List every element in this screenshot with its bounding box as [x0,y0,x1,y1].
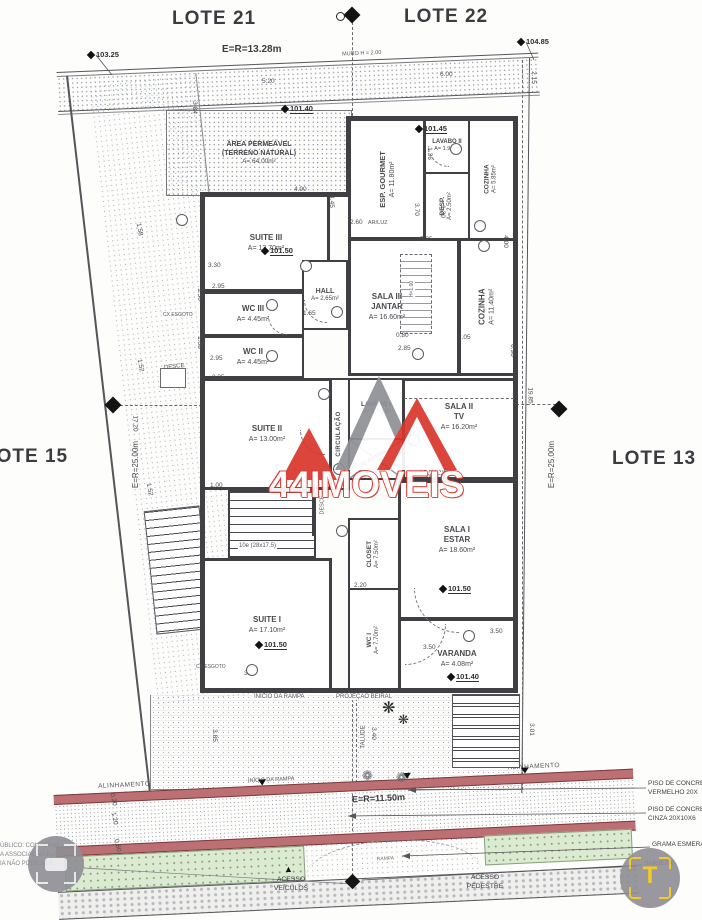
shrub-icon: ❁ [396,770,407,786]
legend-grama: GRAMA ESMERA [652,841,702,850]
room-area: A= 7.70m² [374,626,382,654]
room-area: A= 13.00m² [249,435,285,444]
room-name: CLOSET [366,541,374,567]
legend-line: GRAMA ESMERA [652,841,702,848]
left-boundary-length: E=R=25.00m [131,441,140,488]
room-jd-interno: JD INTERNO [348,438,404,480]
survey-marker-left [105,397,122,414]
legend-piso-cinza: PISO DE CONCRE CINZA 20X10X6 [648,806,702,824]
area-permeavel-line1: ÁREA PERMEÁVEL [226,140,291,149]
room-name: SUITE I [253,615,281,625]
bracket-icon [36,844,48,856]
outer-wall-bottom [200,688,518,693]
room-name: JD INTERNO [360,448,392,471]
stair-note: 10e (28x17.5) [238,543,277,549]
right-boundary-length: E=R=25.00m [547,441,556,488]
projecao-note: PROJEÇÃO BEIRAL [334,694,394,700]
stair-divider-wall [312,492,314,536]
survey-marker-top [344,7,361,24]
room-name: SALA III [372,292,402,302]
dimension-label: 19.85 [527,387,534,403]
room-area: A= 4.45m² [237,315,270,324]
legend-line: PISO DE CONCRE [648,806,702,813]
room-area: A= 11.80m² [387,161,396,197]
room-name: WC II [243,347,263,357]
tree-icon: ❋ [398,712,409,728]
outer-wall-top-left [200,192,350,197]
cp-pluvial-line1: CP PLUVIAL [420,468,450,474]
bracket-icon [36,872,48,884]
room-name: SUITE III [250,233,282,243]
rampa-note: RAMPA [377,856,395,863]
right-boundary-dashed [522,60,523,790]
cx-esgoto-note-1: CX ESGOTO [163,312,193,318]
room-wc-ii: WC IIA= 4.45m² [202,336,304,378]
cp-pluvial-note: CP PLUVIAL DESCE [420,468,450,480]
room-name: ESP. GOURMET [378,151,388,208]
room-name2: JANTAR [371,302,403,312]
room-area: A= 17.10m² [249,626,285,635]
floor-plan-page: { "lots": {"lote21":"LOTE 21","lote22":"… [0,0,702,900]
outer-wall-top-right [346,116,518,121]
area-permeavel-line3: A= 64.00m² [242,158,276,166]
room-name: SUITE II [252,424,282,434]
acesso-veiculos-line2: VEÍCULOS [274,885,308,892]
muro-note: MURO H = 2.00 [342,50,381,58]
room-name: DESP. [439,197,447,216]
area-permeavel: ÁREA PERMEÁVEL (TERRENO NATURAL) A= 64.0… [166,110,352,196]
room-area: A= 13.70m² [248,244,284,253]
talude-note: TALUDE [361,725,367,748]
room-suite-i: SUITE IA= 17.10m² [202,558,332,692]
counter-dashed-box [400,254,432,334]
lot-13-label: LOTE 13 [612,448,696,470]
cx-esgoto-note-2: CX ESGOTO [196,664,226,670]
room-circulacao: CIRCULAÇÃO [330,378,350,490]
outer-wall-right [513,116,518,692]
badge-letter: T [620,862,680,890]
lot-21-label: LOTE 21 [172,8,256,30]
room-name: CIRCULAÇÃO [336,411,344,456]
area-permeavel-line2: (TERRENO NATURAL) [222,149,296,158]
desce-mid-note: DESCE [319,496,325,515]
room-area: A= 11.40m² [488,289,497,325]
counter-height-note: H=1.00 [409,281,415,297]
alinhamento-left-label: ALINHAMENTO [98,781,151,790]
room-sala-ii-tv: SALA IITVA= 16.20m² [402,378,516,480]
street-section: ALINHAMENTO ALINHAMENTO INÍCIO DA RAMPA … [52,736,638,904]
room-name: SALA I [444,525,470,535]
room-name: COZINHA [477,289,487,325]
bracket-icon [64,844,76,856]
outer-wall-left [200,194,205,692]
camera-icon [45,858,67,871]
room-name: COZINHA [484,164,492,194]
cp-pluvial-line2: DESCE [426,474,444,480]
room-desp: DESP.A= 2.50m² [424,172,470,240]
room-area: A= 7.50m² [374,540,382,568]
centerline-sala2 [404,398,514,399]
room-cozinha-pequena: COZINHAA= 5.85m² [468,118,516,240]
dimension-label: 3.01 [528,723,535,736]
acesso-pedestre-label: ACESSO PEDESTRE [450,874,520,892]
room-name2: TV [454,412,464,422]
varanda-steps [452,694,520,768]
centerline-top [352,22,353,116]
centerline-left [120,405,202,406]
access-arrow-icon: ▲ [284,864,293,874]
room-closet: CLOSETA= 7.50m² [348,518,400,590]
survey-flag [521,767,529,773]
grass-strip-right [484,829,633,866]
watermark-badge-camera [28,836,84,892]
room-area: A= 18.60m² [439,546,475,555]
survey-ring-top [336,12,345,21]
room-name2: ESTAR [444,535,471,545]
watermark-badge-t: T [620,848,680,908]
acesso-veiculos-label: ACESSO VEÍCULOS [256,876,326,894]
room-lavabo-i: LAVABO IA= 2.85m² [348,378,404,440]
room-name: HALL [316,287,335,296]
room-name: WC III [242,304,264,314]
room-name: WC I [366,633,374,647]
shrub-icon: ❁ [362,768,373,784]
tree-icon: ❋ [382,698,395,718]
inicio-rampa-note-2: INÍCIO DA RAMPA [248,776,295,784]
room-wc-iii: WC IIIA= 4.45m² [202,292,304,336]
survey-flag [258,779,266,785]
room-wc-i: WC IA= 7.70m² [348,588,400,692]
legend-piso-vermelho: PISO DE CONCRE VERMELHO 20X [648,780,702,798]
inicio-rampa-note-1: INÍCIO DA RAMPA [252,694,307,700]
outer-wall-connector [346,118,351,196]
acesso-pedestre-line2: PEDESTRE [467,883,504,890]
room-cozinha: COZINHAA= 11.40m² [458,238,516,376]
door-window-tag-circle [336,525,348,537]
room-name: LAVABO I [361,401,391,409]
lot-15-label: LOTE 15 [0,446,68,468]
legend-line: PISO DE CONCRE [648,780,702,787]
room-name: VARANDA [437,649,476,659]
legend-line: VERMELHO 20X [648,789,698,796]
room-name: SALA II [445,402,473,412]
room-area: A= 16.20m² [441,423,477,432]
room-area: A= 2.85m² [362,409,390,417]
room-area: A= 4.08m² [441,660,474,669]
legend-line: CINZA 20X10X6 [648,815,696,822]
room-area: A= 4.45m² [237,358,270,367]
room-area: A= 5.85m² [492,165,500,193]
ar-luz-note: AR/LUZ [368,220,388,226]
area-permeavel-label: ÁREA PERMEÁVEL (TERRENO NATURAL) A= 64.0… [222,140,296,167]
acesso-veiculos-line1: ACESSO [277,876,305,883]
bracket-icon [64,872,76,884]
top-boundary-length: E=R=13.28m [222,44,282,55]
acesso-pedestre-line1: ACESSO [471,874,499,881]
lot-22-label: LOTE 22 [404,6,488,28]
room-area: A= 2.50m² [447,192,455,220]
